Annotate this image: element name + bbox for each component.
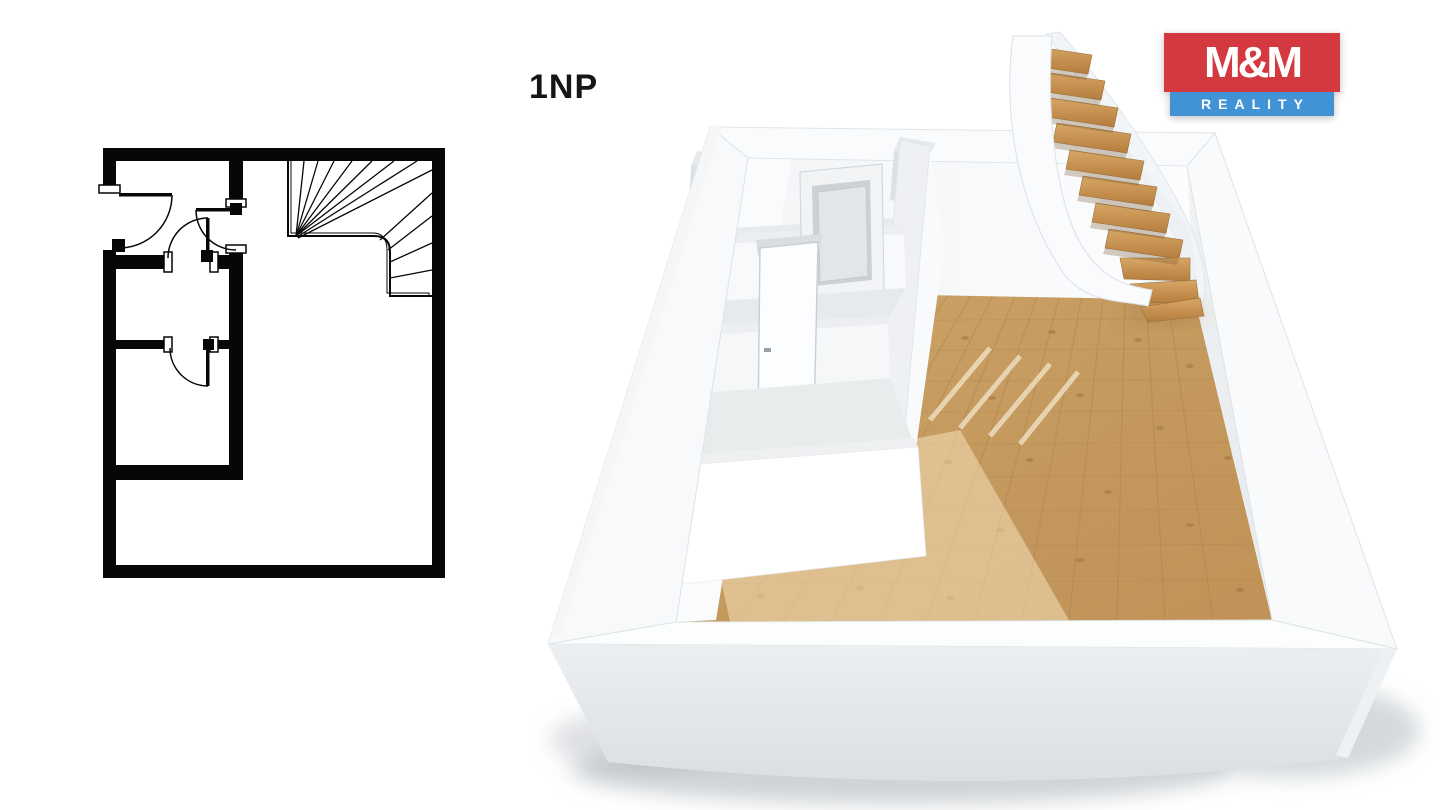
staircase-2d xyxy=(288,161,432,296)
outer-walls-2d xyxy=(103,148,445,578)
floorplan-sheet: 1NP M&M REALITY xyxy=(0,0,1440,810)
room-door-2d xyxy=(164,218,218,272)
entry-door-2d xyxy=(99,185,172,252)
door-leaf xyxy=(818,186,868,282)
door-handle xyxy=(764,348,771,352)
lower-room-door-2d xyxy=(164,337,218,386)
floor-label: 1NP xyxy=(529,68,598,107)
front-wall-outer-face xyxy=(548,644,1397,781)
stair-treads-2d xyxy=(296,161,432,278)
floorplan-3d xyxy=(548,32,1420,804)
floorplan-2d xyxy=(99,148,445,578)
logo-mm-text: M&M xyxy=(1204,41,1300,85)
mm-reality-logo: M&M REALITY xyxy=(1164,33,1340,116)
hall-door-2d xyxy=(196,199,246,253)
floorplan-graphics xyxy=(0,0,1440,810)
logo-reality-text: REALITY xyxy=(1194,97,1310,111)
logo-reality-bar: REALITY xyxy=(1170,92,1334,116)
front-wall-top xyxy=(548,620,1397,649)
logo-mm-box: M&M xyxy=(1164,33,1340,92)
